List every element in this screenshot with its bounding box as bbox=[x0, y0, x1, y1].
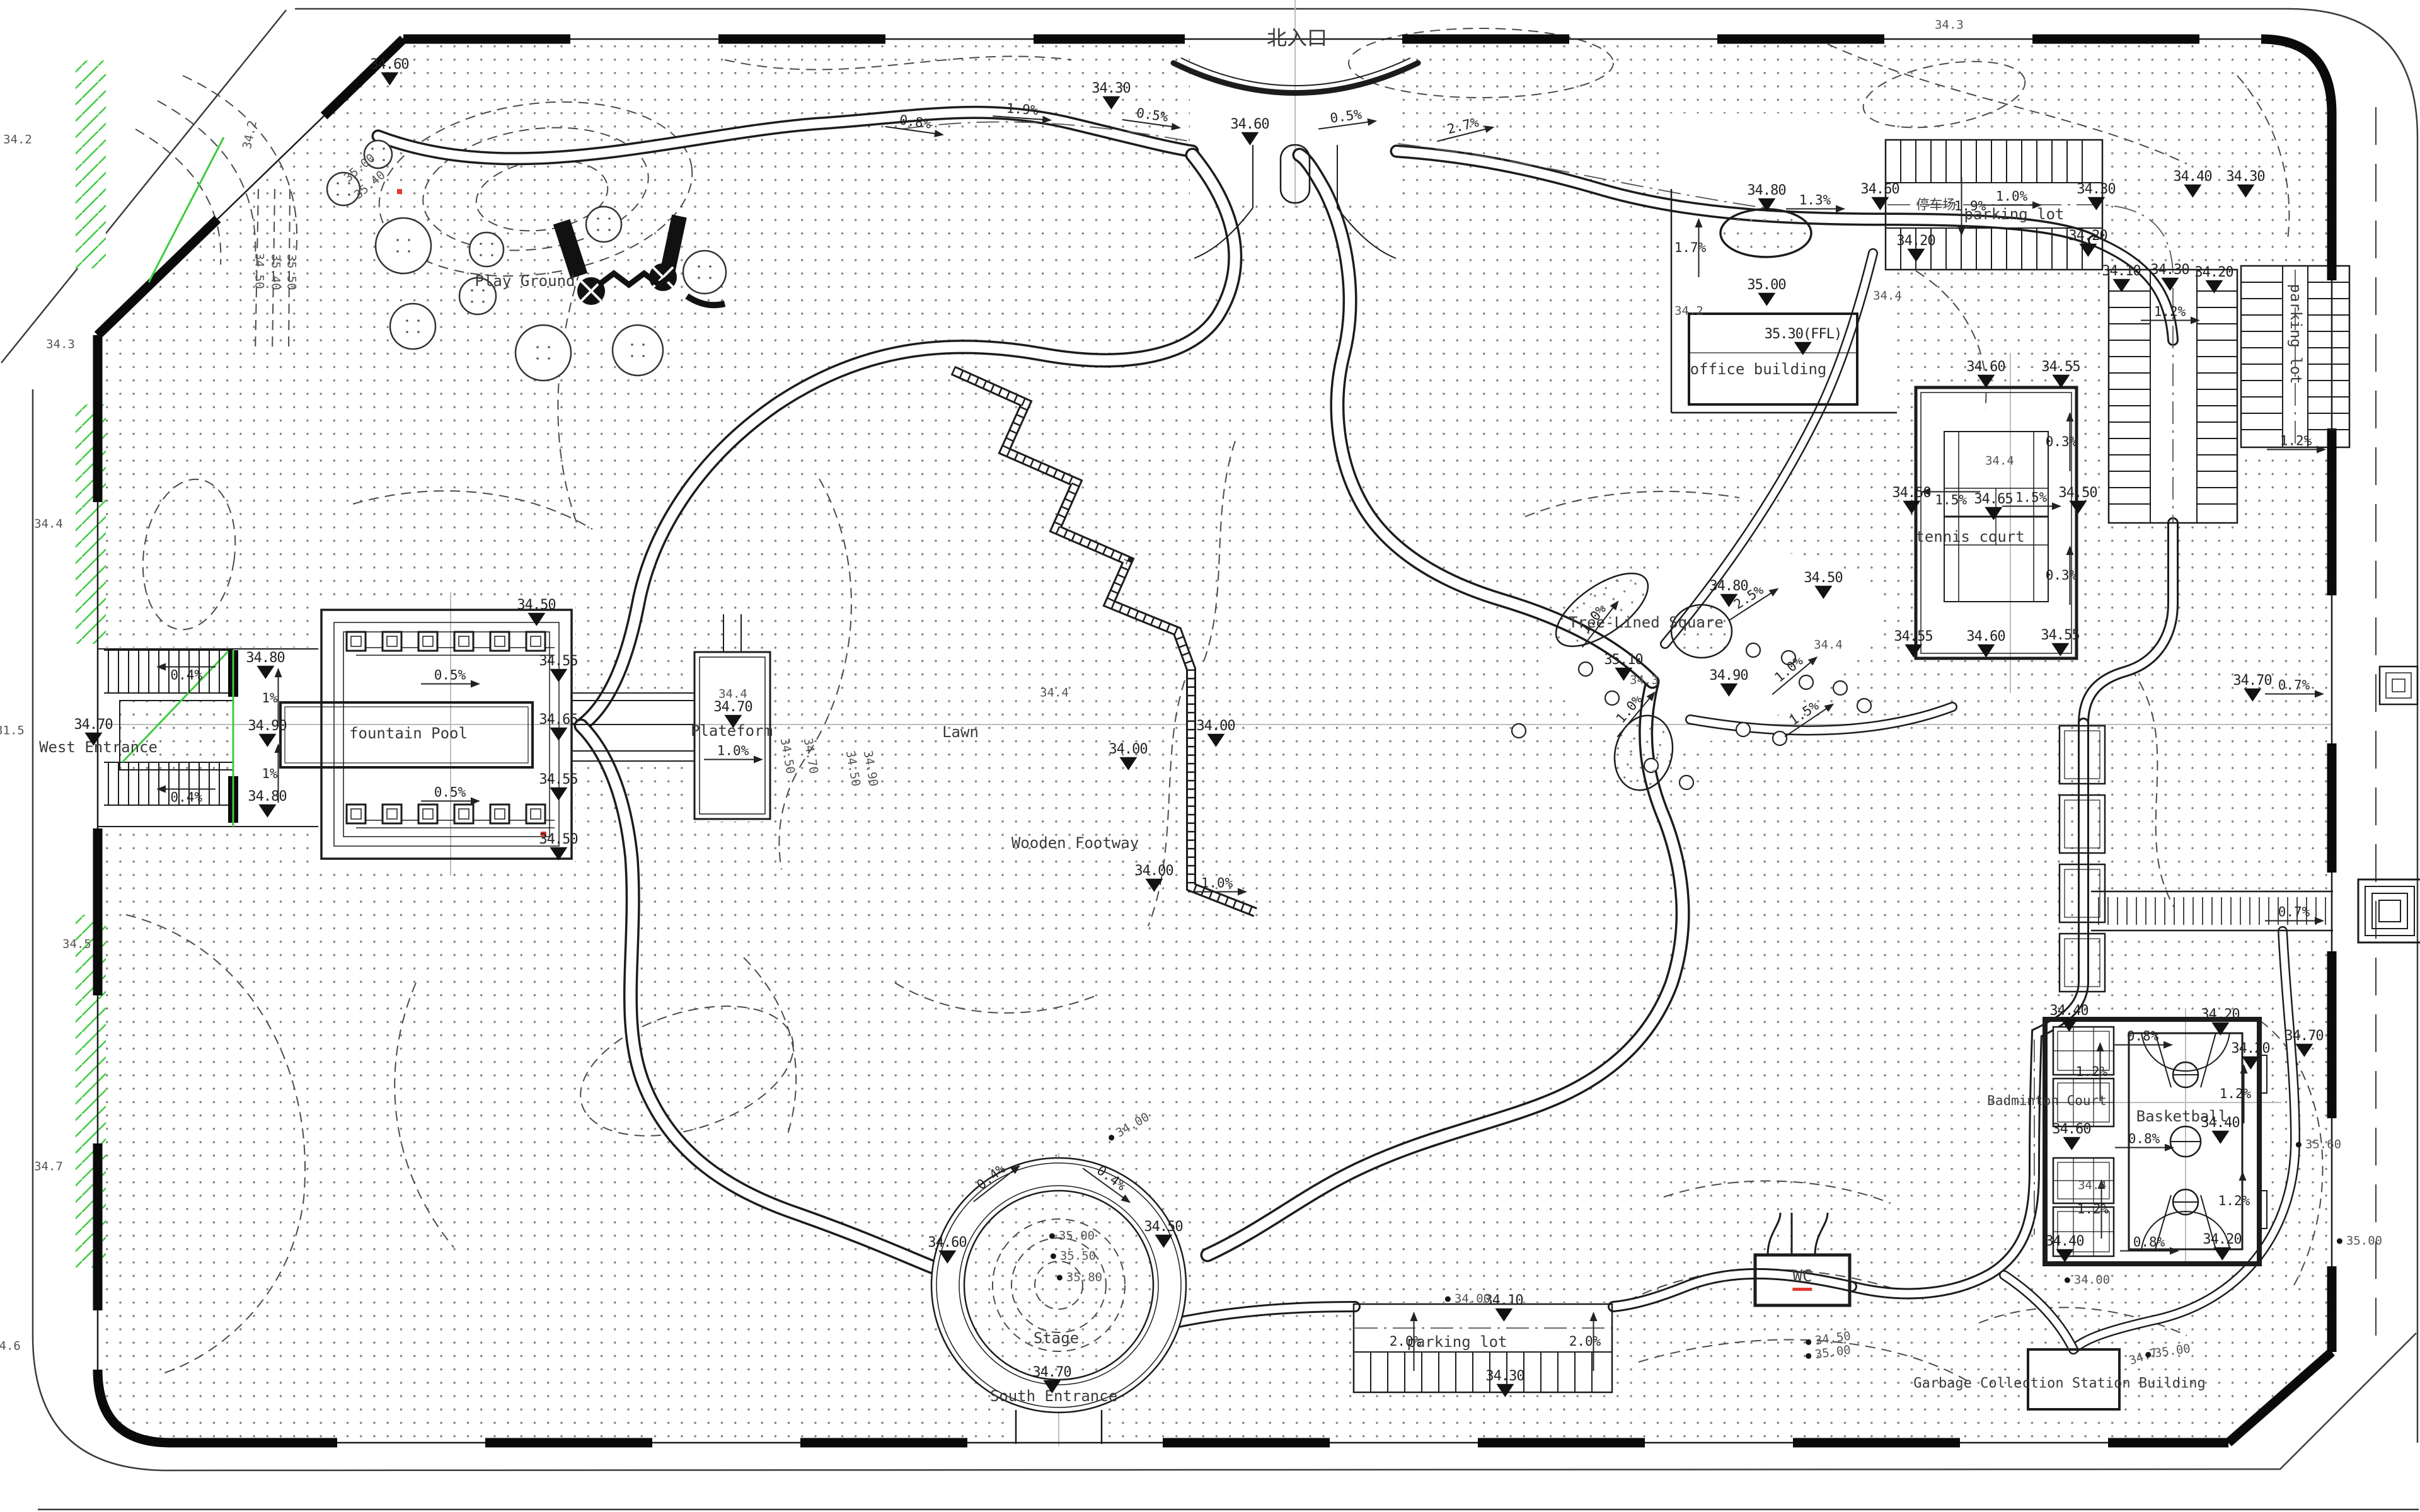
spot-elevation-marker: 34.30 bbox=[2150, 263, 2189, 291]
slope-arrow: 1.5% bbox=[1922, 491, 1980, 507]
contour-elevation-label: 34.6 bbox=[0, 1341, 21, 1353]
slope-arrow: 1% bbox=[263, 745, 279, 803]
contour-elevation-label: 34.4 bbox=[34, 518, 63, 530]
contour-elevation-label: 31.5 bbox=[0, 725, 25, 737]
spot-elevation-marker: 34.10 bbox=[2102, 265, 2140, 292]
spot-elevation-marker: 34.60 bbox=[1966, 630, 2005, 658]
spot-elevation-marker: 34.50 bbox=[1804, 571, 1842, 599]
feature-label: Lawn bbox=[942, 723, 979, 741]
contour-elevation-label: 35.50 bbox=[285, 254, 297, 290]
contour-elevation-label: 34.4 bbox=[1873, 290, 1902, 302]
slope-arrow: 0.8% bbox=[2114, 1030, 2172, 1046]
contour-elevation-label: 35.00 bbox=[1049, 1230, 1095, 1242]
spot-elevation-marker: 34.30 bbox=[2226, 170, 2264, 198]
spot-elevation-marker: 34.60 bbox=[2052, 1123, 2090, 1150]
slope-arrow: 1.2% bbox=[2229, 1065, 2245, 1123]
spot-elevation-marker: 34.55 bbox=[539, 655, 577, 682]
elevation-triangle-icon bbox=[1102, 96, 1120, 110]
slope-direction-arrow-icon bbox=[2100, 1043, 2101, 1101]
slope-arrow: 1.5% bbox=[2002, 491, 2060, 507]
slope-direction-arrow-icon bbox=[1922, 491, 1980, 493]
slope-direction-arrow-icon bbox=[2242, 1172, 2244, 1230]
feature-label: Play Ground bbox=[475, 272, 575, 290]
contour-elevation-label: 35.50 bbox=[1051, 1251, 1096, 1263]
elevation-triangle-icon bbox=[1794, 342, 1812, 355]
slope-arrow: 1.0% bbox=[1188, 877, 1246, 893]
spot-elevation-marker: 34.50 bbox=[2058, 486, 2097, 514]
elevation-triangle-icon bbox=[2237, 185, 2254, 198]
spot-elevation-marker: 34.30 bbox=[2077, 183, 2115, 210]
elevation-triangle-icon bbox=[1119, 757, 1137, 770]
elevation-triangle-icon bbox=[2184, 185, 2201, 198]
spot-elevation-marker: 34.40 bbox=[2173, 170, 2211, 198]
contour-elevation-label: 35.40 bbox=[270, 254, 282, 290]
spot-elevation-marker: 34.55 bbox=[1894, 630, 1932, 658]
slope-arrow: 0.7% bbox=[2265, 679, 2323, 695]
elevation-triangle-icon bbox=[1145, 879, 1163, 892]
spot-elevation-marker: 34.00 bbox=[1134, 864, 1173, 892]
feature-label: 停车场 bbox=[1916, 195, 1956, 214]
slope-direction-arrow-icon bbox=[421, 801, 479, 802]
slope-direction-arrow-icon bbox=[2141, 320, 2199, 321]
contour-elevation-label: 35.00 bbox=[2337, 1235, 2382, 1247]
slope-direction-arrow-icon bbox=[2244, 1065, 2245, 1123]
slope-arrow: 0.7% bbox=[2265, 906, 2323, 922]
feature-label: fountain Pool bbox=[349, 724, 468, 742]
contour-elevation-label: 34.3 bbox=[46, 339, 75, 351]
slope-direction-arrow-icon bbox=[1698, 219, 1700, 277]
slope-direction-arrow-icon bbox=[1983, 205, 2041, 206]
elevation-triangle-icon bbox=[258, 805, 276, 818]
slope-arrow: 1.2% bbox=[2085, 1043, 2101, 1101]
slope-arrow: 1.2% bbox=[2141, 306, 2199, 321]
elevation-triangle-icon bbox=[1758, 293, 1775, 306]
slope-direction-arrow-icon bbox=[1593, 1313, 1594, 1371]
slope-arrow: 0.3% bbox=[2055, 547, 2071, 605]
slope-direction-arrow-icon bbox=[158, 789, 216, 790]
contour-elevation-label: 35.80 bbox=[1057, 1272, 1102, 1284]
spot-elevation-marker: 34.00 bbox=[1109, 743, 1147, 770]
slope-arrow: 0.4% bbox=[158, 667, 216, 682]
feature-label: Stage bbox=[1034, 1329, 1079, 1347]
slope-arrow: 1.0% bbox=[704, 745, 762, 760]
spot-elevation-marker: 34.40 bbox=[2045, 1235, 2083, 1263]
spot-elevation-marker: 34.60 bbox=[1860, 183, 1899, 210]
slope-arrow: 0.5% bbox=[421, 786, 479, 802]
contour-elevation-label: 34.2 bbox=[1674, 306, 1703, 318]
feature-label: tennis court bbox=[1915, 528, 2024, 546]
spot-elevation-marker: 34.70 bbox=[713, 701, 752, 728]
feature-label: Wooden Footway bbox=[1011, 834, 1139, 852]
slope-direction-arrow-icon bbox=[421, 684, 479, 685]
elevation-triangle-icon bbox=[2244, 689, 2261, 702]
elevation-triangle-icon bbox=[2161, 278, 2179, 291]
elevation-triangle-icon bbox=[550, 728, 567, 741]
contour-elevation-label: 34.2 bbox=[3, 134, 32, 146]
elevation-triangle-icon bbox=[2205, 280, 2223, 294]
slope-arrow: 2.0% bbox=[1579, 1313, 1594, 1371]
spot-elevation-marker: 35.30(FFL) bbox=[1765, 328, 1841, 355]
site-plan-drawing: 北入口Play GroundWest Entrancefountain Pool… bbox=[0, 0, 2420, 1512]
slope-direction-arrow-icon bbox=[1188, 891, 1246, 893]
feature-label: parking lot bbox=[2287, 284, 2305, 384]
elevation-triangle-icon bbox=[1977, 375, 1995, 388]
elevation-triangle-icon bbox=[1977, 644, 1995, 658]
slope-direction-arrow-icon bbox=[278, 669, 279, 727]
elevation-triangle-icon bbox=[1814, 586, 1832, 599]
slope-arrow: 2.0% bbox=[1399, 1313, 1415, 1371]
contour-elevation-label: 34.3 bbox=[1935, 20, 1964, 31]
spot-elevation-marker: 34.60 bbox=[370, 58, 408, 86]
elevation-triangle-icon bbox=[2112, 279, 2130, 292]
elevation-triangle-icon bbox=[1241, 132, 1259, 146]
slope-arrow: 0.8% bbox=[2115, 1133, 2173, 1148]
contour-elevation-label: 34.7 bbox=[34, 1161, 63, 1173]
elevation-triangle-icon bbox=[2295, 1044, 2313, 1057]
spot-elevation-marker: 34.60 bbox=[1966, 360, 2005, 388]
slope-direction-arrow-icon bbox=[2070, 547, 2071, 605]
elevation-triangle-icon bbox=[2060, 1019, 2078, 1032]
spot-elevation-marker: 34.50 bbox=[1144, 1220, 1182, 1248]
elevation-triangle-icon bbox=[84, 733, 102, 746]
elevation-triangle-icon bbox=[1495, 1309, 1512, 1322]
feature-label: parking lot bbox=[1407, 1333, 1507, 1351]
elevation-triangle-icon bbox=[550, 787, 567, 801]
elevation-triangle-icon bbox=[550, 847, 567, 861]
elevation-triangle-icon bbox=[2063, 1137, 2080, 1150]
slope-direction-arrow-icon bbox=[2265, 920, 2323, 922]
slope-direction-arrow-icon bbox=[2002, 506, 2060, 507]
slope-arrow: 1.9% bbox=[1961, 177, 1977, 235]
spot-elevation-marker: 34.80 bbox=[1747, 184, 1785, 212]
elevation-triangle-icon bbox=[2213, 1247, 2231, 1261]
feature-label: office building bbox=[1690, 360, 1827, 378]
elevation-triangle-icon bbox=[938, 1251, 956, 1264]
slope-direction-arrow-icon bbox=[158, 667, 216, 668]
slope-arrow: 1.2% bbox=[2267, 435, 2325, 450]
spot-elevation-marker: 34.70 bbox=[1032, 1366, 1071, 1394]
slope-direction-arrow-icon bbox=[278, 745, 279, 803]
slope-direction-arrow-icon bbox=[2114, 1045, 2172, 1046]
slope-arrow: 0.4% bbox=[158, 789, 216, 805]
elevation-triangle-icon bbox=[724, 715, 742, 728]
spot-elevation-marker: 35.00 bbox=[1747, 278, 1785, 306]
spot-elevation-marker: 34.65 bbox=[539, 713, 577, 741]
elevation-triangle-icon bbox=[1904, 644, 1922, 658]
elevation-triangle-icon bbox=[2087, 197, 2105, 210]
slope-direction-arrow-icon bbox=[1786, 209, 1844, 210]
elevation-triangle-icon bbox=[1907, 249, 1925, 262]
spot-elevation-marker: 34.20 bbox=[2201, 1008, 2239, 1036]
contour-elevation-label: 34.4 bbox=[2078, 1180, 2107, 1192]
spot-elevation-marker: 34.60 bbox=[1230, 118, 1269, 146]
feature-label: 北入口 bbox=[1267, 22, 1327, 51]
spot-elevation-marker: 34.90 bbox=[1709, 669, 1748, 697]
elevation-triangle-icon bbox=[2051, 643, 2069, 656]
elevation-triangle-icon bbox=[2069, 501, 2087, 514]
elevation-triangle-icon bbox=[2211, 1022, 2229, 1036]
slope-direction-arrow-icon bbox=[2115, 1147, 2173, 1148]
slope-direction-arrow-icon bbox=[2120, 1251, 2178, 1252]
contour-elevation-label: 34.4 bbox=[1985, 455, 2014, 467]
slope-direction-arrow-icon bbox=[2267, 449, 2325, 450]
slope-arrow: 0.5% bbox=[421, 669, 479, 685]
contour-elevation-label: 34.4 bbox=[1814, 639, 1843, 651]
slope-arrow: 1.2% bbox=[2228, 1172, 2244, 1230]
elevation-triangle-icon bbox=[1985, 507, 2002, 520]
spot-elevation-marker: 34.55 bbox=[2041, 629, 2079, 656]
elevation-triangle-icon bbox=[381, 72, 398, 86]
elevation-triangle-icon bbox=[1043, 1380, 1061, 1394]
slope-arrow: 1% bbox=[263, 669, 279, 727]
elevation-triangle-icon bbox=[1496, 1384, 1514, 1397]
slope-direction-arrow-icon bbox=[2265, 694, 2323, 695]
elevation-triangle-icon bbox=[1903, 501, 1920, 514]
spot-elevation-marker: 34.50 bbox=[539, 833, 577, 861]
elevation-triangle-icon bbox=[1207, 734, 1224, 747]
feature-label: WC bbox=[1792, 1267, 1812, 1291]
feature-label: Garbage Collection Station Building bbox=[1913, 1376, 2206, 1392]
spot-elevation-marker: 34.40 bbox=[2049, 1004, 2088, 1032]
spot-elevation-marker: 34.20 bbox=[2194, 266, 2233, 294]
elevation-triangle-icon bbox=[1758, 198, 1775, 212]
spot-elevation-marker: 34.30 bbox=[1485, 1370, 1524, 1397]
slope-arrow: 0.8% bbox=[2120, 1236, 2178, 1252]
contour-elevation-label: 34.50 bbox=[253, 253, 265, 289]
plan-linework bbox=[0, 0, 2420, 1512]
contour-elevation-label: 34.00 bbox=[2065, 1274, 2110, 1286]
spot-elevation-marker: 34.20 bbox=[2203, 1233, 2241, 1261]
spot-elevation-marker: 34.20 bbox=[2068, 229, 2107, 257]
contour-elevation-label: 35.60 bbox=[2296, 1139, 2341, 1151]
spot-elevation-marker: 34.00 bbox=[1196, 719, 1235, 747]
contour-elevation-label: 34.00 bbox=[1445, 1293, 1490, 1305]
slope-arrow: 1.7% bbox=[1684, 219, 1700, 277]
spot-elevation-marker: 34.70 bbox=[74, 718, 112, 746]
elevation-triangle-icon bbox=[1720, 684, 1737, 697]
contour-elevation-label: 34.5 bbox=[62, 939, 91, 951]
elevation-triangle-icon bbox=[527, 613, 545, 626]
elevation-triangle-icon bbox=[550, 669, 567, 682]
elevation-triangle-icon bbox=[2211, 1131, 2229, 1144]
spot-elevation-marker: 34.55 bbox=[2041, 360, 2080, 388]
elevation-triangle-icon bbox=[2079, 244, 2097, 257]
slope-direction-arrow-icon bbox=[704, 759, 762, 760]
slope-arrow: 1.3% bbox=[1786, 194, 1844, 210]
slope-arrow: 1.0% bbox=[1983, 190, 2041, 206]
contour-elevation-label: 34.4 bbox=[718, 689, 747, 701]
slope-direction-arrow-icon bbox=[1414, 1313, 1415, 1371]
elevation-triangle-icon bbox=[2052, 375, 2070, 388]
spot-elevation-marker: 34.55 bbox=[539, 773, 577, 801]
elevation-triangle-icon bbox=[1155, 1235, 1172, 1248]
elevation-triangle-icon bbox=[1871, 197, 1889, 210]
spot-elevation-marker: 34.50 bbox=[517, 598, 555, 626]
spot-elevation-marker: 34.70 bbox=[2285, 1029, 2323, 1057]
slope-direction-arrow-icon bbox=[1961, 177, 1962, 235]
slope-direction-arrow-icon bbox=[2070, 413, 2071, 471]
spot-elevation-marker: 34.60 bbox=[928, 1236, 966, 1264]
contour-elevation-label: 34.4 bbox=[1040, 687, 1069, 699]
elevation-triangle-icon bbox=[2056, 1249, 2073, 1263]
spot-elevation-marker: 34.20 bbox=[1896, 234, 1935, 262]
contour-elevation-label: 34.3 bbox=[1630, 675, 1659, 687]
slope-arrow: 0.3% bbox=[2055, 413, 2071, 471]
